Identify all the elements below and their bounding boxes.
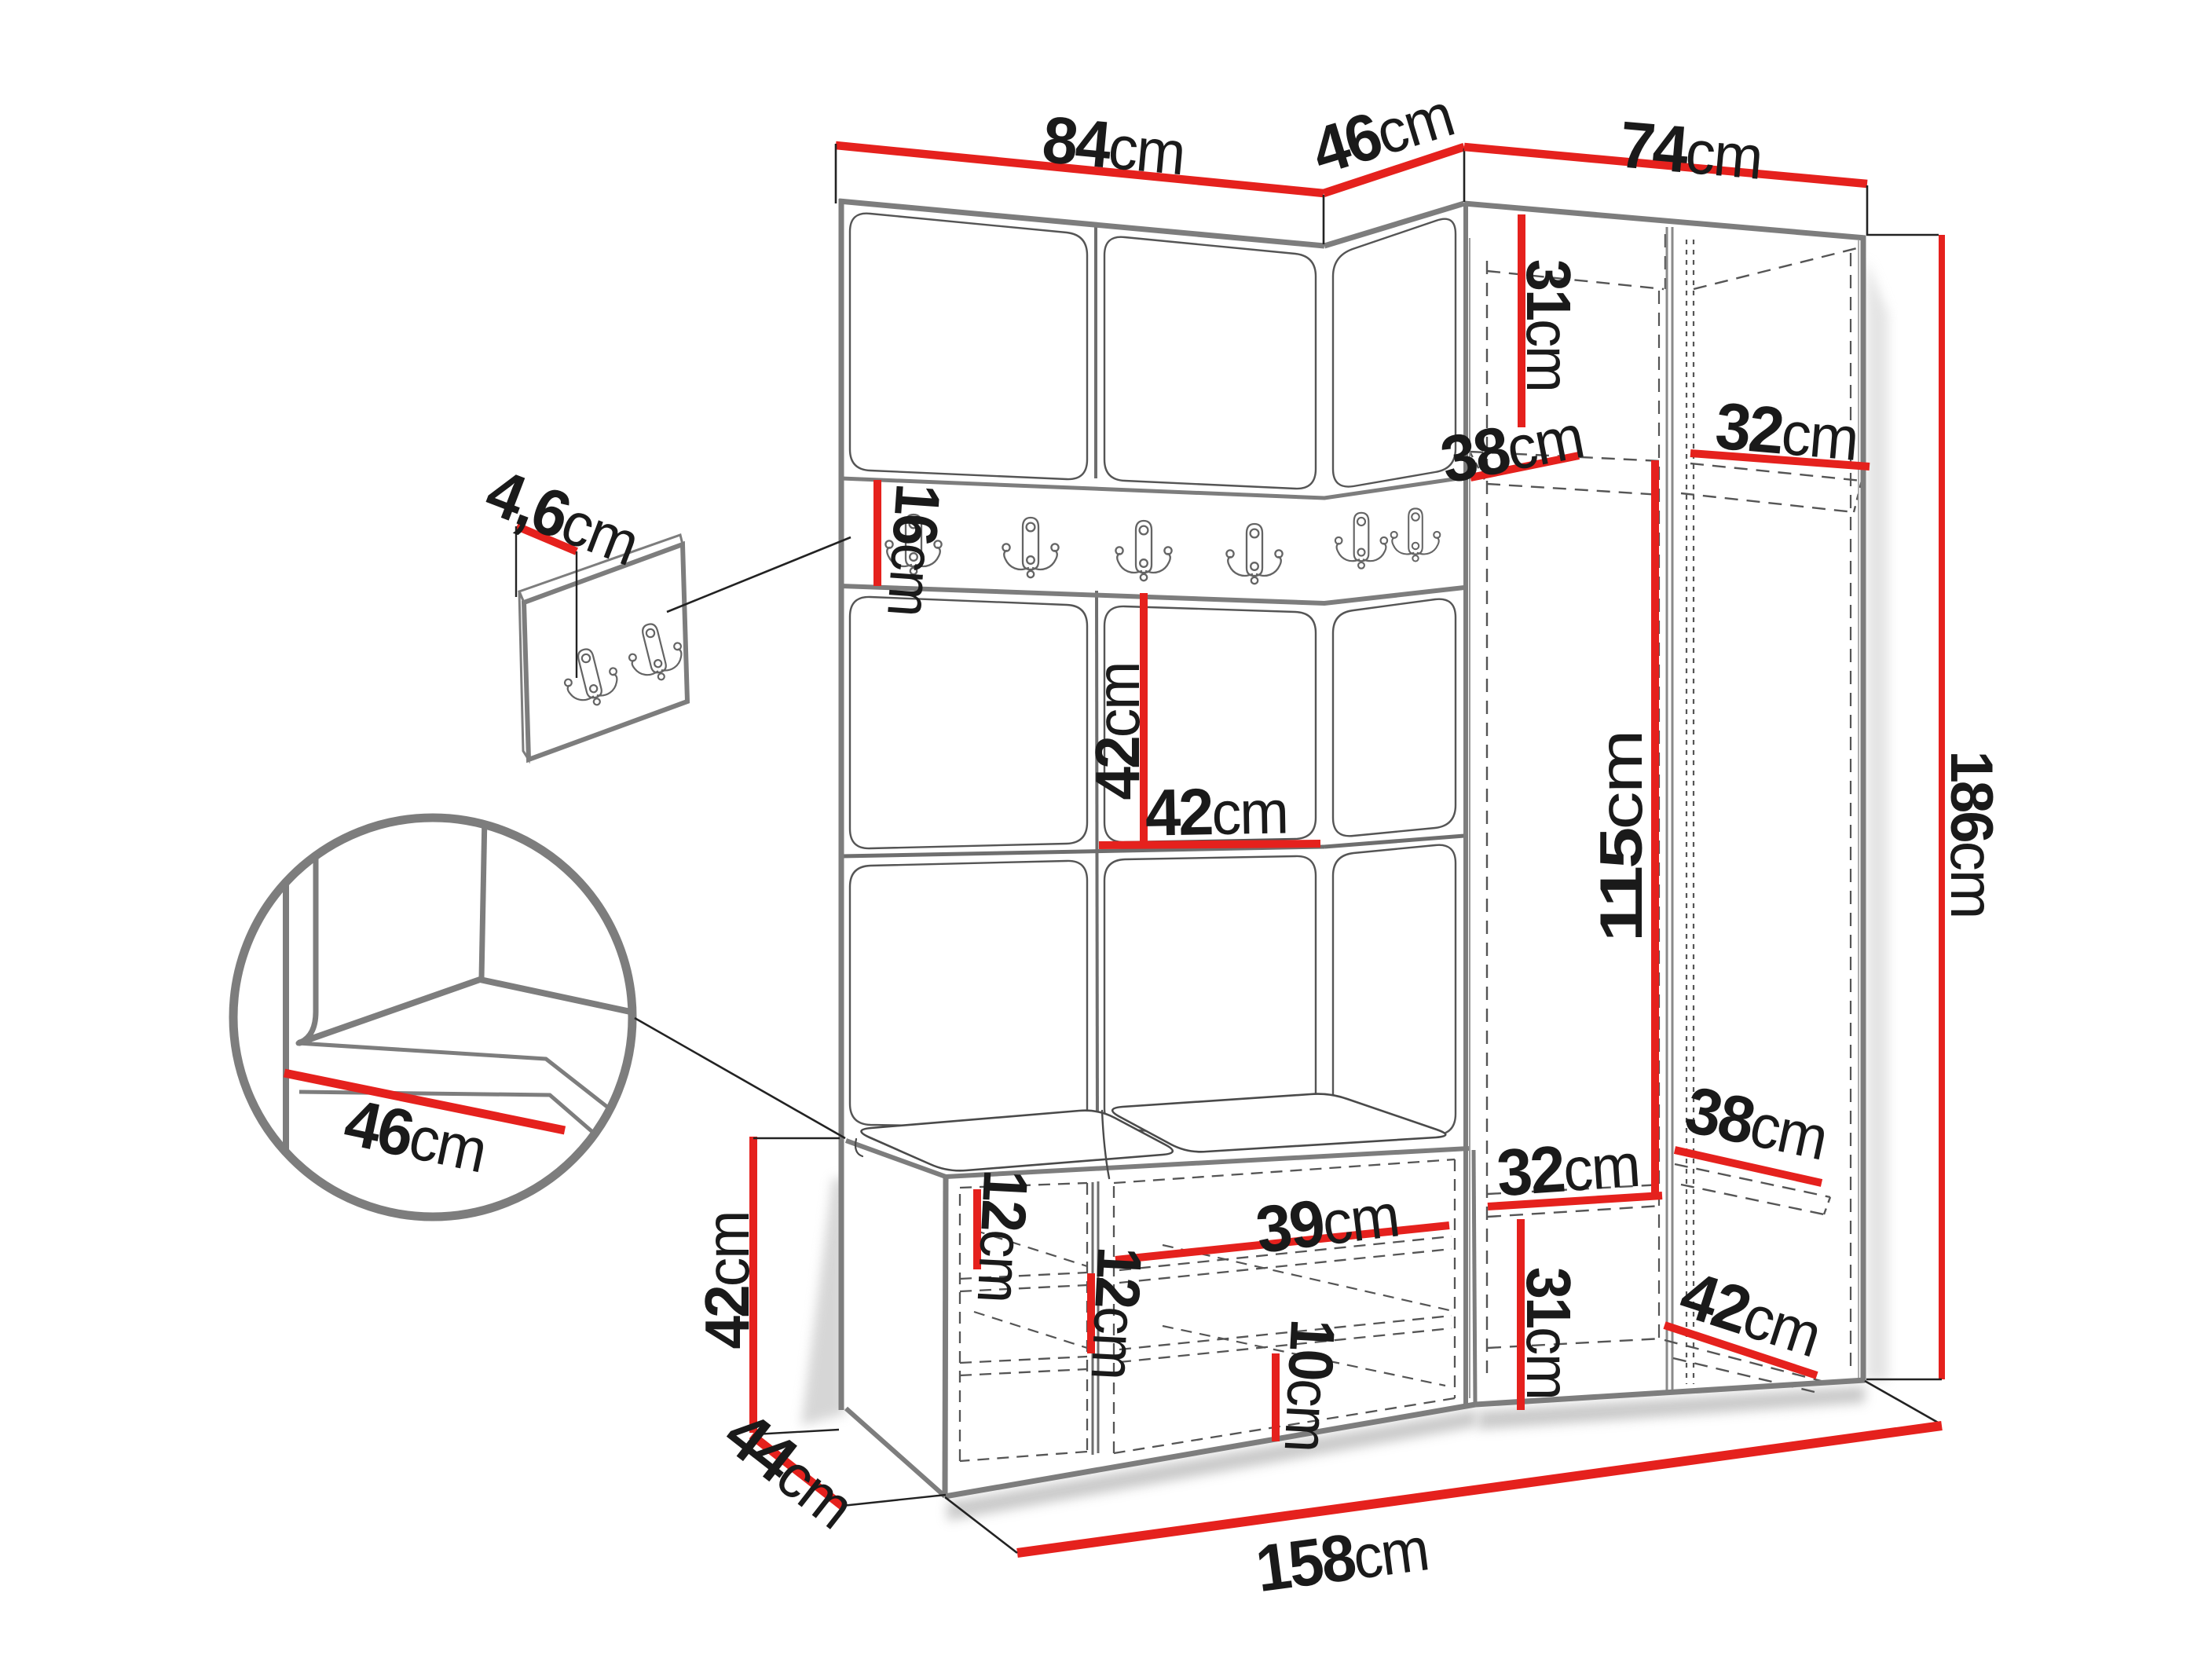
svg-text:31cm: 31cm	[1514, 1267, 1584, 1399]
svg-text:10cm: 10cm	[1272, 1317, 1349, 1452]
svg-text:12cm: 12cm	[965, 1168, 1042, 1303]
svg-text:31cm: 31cm	[1514, 259, 1584, 391]
svg-text:42cm: 42cm	[692, 1212, 762, 1350]
svg-text:16cm: 16cm	[874, 482, 954, 618]
svg-text:42cm: 42cm	[1082, 663, 1152, 800]
svg-text:12cm: 12cm	[1079, 1245, 1155, 1380]
svg-text:115cm: 115cm	[1586, 731, 1655, 942]
svg-text:42cm: 42cm	[1144, 773, 1288, 849]
svg-text:186cm: 186cm	[1938, 751, 2007, 918]
svg-text:32cm: 32cm	[1494, 1126, 1641, 1210]
